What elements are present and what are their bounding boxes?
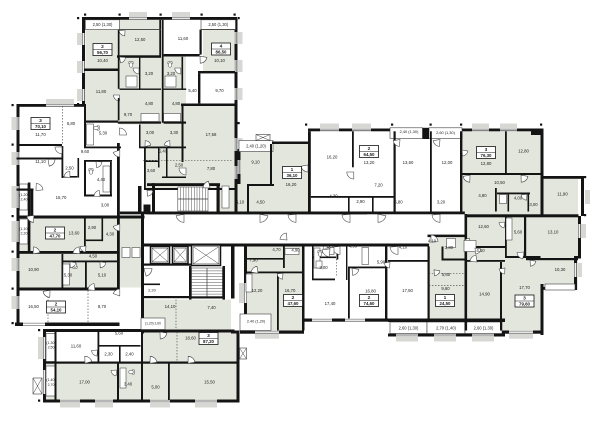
svg-text:9,60: 9,60 (441, 286, 450, 291)
svg-text:5,30: 5,30 (99, 131, 108, 136)
svg-text:54,10: 54,10 (51, 308, 63, 313)
svg-text:11,10: 11,10 (35, 159, 46, 164)
svg-text:(1,10): (1,10) (19, 227, 28, 231)
svg-text:16,70: 16,70 (285, 288, 296, 293)
svg-text:2,50 (1,30): 2,50 (1,30) (93, 22, 113, 27)
svg-text:5,10: 5,10 (98, 273, 107, 278)
svg-text:4,40: 4,40 (97, 177, 106, 182)
svg-text:13,60: 13,60 (69, 231, 80, 236)
svg-text:12,00: 12,00 (442, 160, 453, 165)
svg-text:3,00: 3,00 (146, 130, 155, 135)
svg-text:3,20: 3,20 (145, 71, 154, 76)
svg-text:74,60: 74,60 (364, 301, 376, 306)
svg-text:16,20: 16,20 (327, 155, 338, 160)
svg-text:3,20: 3,20 (437, 200, 446, 205)
svg-text:2: 2 (368, 146, 371, 152)
svg-text:4,80: 4,80 (145, 101, 154, 106)
svg-text:2,50: 2,50 (65, 166, 74, 171)
svg-text:16,20: 16,20 (286, 182, 297, 187)
svg-text:5,80: 5,80 (394, 200, 403, 205)
svg-text:4,70: 4,70 (272, 247, 281, 252)
svg-text:7,90: 7,90 (249, 258, 258, 263)
svg-text:7,40: 7,40 (207, 305, 216, 310)
svg-text:12,60: 12,60 (478, 224, 489, 229)
svg-text:2,70 (1,40): 2,70 (1,40) (436, 325, 456, 330)
svg-text:47,70: 47,70 (50, 234, 62, 239)
svg-text:16,80: 16,80 (365, 289, 376, 294)
svg-text:2,20: 2,20 (148, 289, 155, 293)
svg-text:12,20: 12,20 (252, 288, 263, 293)
svg-text:11,80: 11,80 (96, 89, 107, 94)
svg-text:1: 1 (291, 167, 294, 173)
svg-text:1: 1 (444, 295, 447, 301)
svg-text:10,30: 10,30 (555, 267, 566, 272)
svg-text:9,60: 9,60 (81, 149, 90, 154)
svg-text:5,60: 5,60 (514, 230, 523, 235)
svg-text:4: 4 (220, 44, 223, 50)
svg-text:47,60: 47,60 (288, 301, 300, 306)
svg-text:3,20: 3,20 (167, 71, 176, 76)
svg-text:17,00: 17,00 (79, 380, 90, 385)
svg-text:64,50: 64,50 (364, 152, 376, 157)
svg-text:3,40: 3,40 (124, 382, 133, 387)
svg-text:5,80: 5,80 (67, 121, 76, 126)
svg-text:10,10: 10,10 (214, 58, 225, 63)
svg-text:4,50: 4,50 (256, 200, 265, 205)
svg-text:14,10: 14,10 (165, 304, 176, 309)
svg-text:4,10: 4,10 (428, 239, 437, 244)
svg-text:10,90: 10,90 (28, 267, 39, 272)
svg-text:11,90: 11,90 (557, 192, 568, 197)
svg-text:2,40 (1,20): 2,40 (1,20) (247, 320, 266, 324)
svg-text:14,90: 14,90 (479, 292, 490, 297)
svg-text:2,20: 2,20 (21, 232, 28, 236)
svg-text:4,80: 4,80 (172, 101, 181, 106)
svg-text:13,10: 13,10 (548, 230, 559, 235)
svg-text:2,90: 2,90 (88, 225, 97, 230)
svg-text:18,60: 18,60 (185, 336, 196, 341)
svg-text:2,60 (1,30): 2,60 (1,30) (399, 325, 419, 330)
svg-text:79,60: 79,60 (519, 302, 531, 307)
svg-text:4,90: 4,90 (291, 248, 300, 253)
svg-text:4,80: 4,80 (478, 193, 487, 198)
svg-text:2,50: 2,50 (175, 163, 184, 168)
svg-text:4,90: 4,90 (349, 244, 358, 249)
svg-text:12,80: 12,80 (481, 161, 492, 166)
svg-text:17,58: 17,58 (206, 132, 217, 137)
svg-text:4,30: 4,30 (329, 194, 338, 199)
svg-text:10,40: 10,40 (97, 58, 108, 63)
svg-text:3,60: 3,60 (147, 168, 156, 173)
svg-text:2,40: 2,40 (21, 198, 28, 202)
svg-text:5,40: 5,40 (159, 149, 168, 154)
svg-text:2: 2 (101, 44, 104, 50)
svg-text:16,50: 16,50 (28, 304, 39, 309)
svg-text:10,50: 10,50 (494, 180, 505, 185)
svg-text:2: 2 (54, 228, 57, 234)
svg-text:17,40: 17,40 (325, 301, 336, 306)
svg-text:8,70: 8,70 (98, 304, 107, 309)
svg-text:4,10: 4,10 (476, 248, 485, 253)
svg-text:2,60 (1,30): 2,60 (1,30) (474, 325, 494, 330)
svg-text:3,80: 3,80 (445, 245, 454, 250)
svg-text:24,50: 24,50 (440, 301, 452, 306)
svg-text:11,70: 11,70 (35, 132, 46, 137)
svg-text:36,10: 36,10 (287, 173, 299, 178)
svg-text:9,70: 9,70 (124, 112, 133, 117)
svg-text:15,50: 15,50 (204, 380, 215, 385)
svg-text:5,00: 5,00 (151, 385, 160, 390)
svg-text:9,10: 9,10 (251, 160, 260, 165)
svg-text:3,00: 3,00 (319, 265, 328, 270)
svg-text:(1,20) 2,60: (1,20) 2,60 (145, 322, 161, 326)
svg-text:(1,40): (1,40) (46, 378, 55, 382)
svg-text:76,30: 76,30 (481, 153, 493, 158)
svg-text:87,20: 87,20 (203, 339, 215, 344)
svg-text:11,60: 11,60 (71, 344, 82, 349)
svg-text:5,60: 5,60 (115, 331, 124, 336)
svg-text:2,90: 2,90 (356, 199, 365, 204)
svg-text:3: 3 (207, 333, 210, 339)
svg-text:12,50: 12,50 (135, 37, 146, 42)
svg-text:13,60: 13,60 (403, 160, 414, 165)
svg-text:3: 3 (523, 296, 526, 302)
svg-text:2,30: 2,30 (104, 352, 113, 357)
svg-text:2,40: 2,40 (125, 352, 134, 357)
svg-text:5,90: 5,90 (377, 260, 386, 265)
svg-text:2,60 (1,30): 2,60 (1,30) (436, 130, 456, 135)
svg-text:2,40 (1,20): 2,40 (1,20) (246, 144, 266, 149)
svg-text:86,50: 86,50 (216, 50, 228, 55)
svg-text:2,50: 2,50 (48, 346, 55, 350)
svg-text:7,20: 7,20 (374, 183, 383, 188)
svg-text:9,70: 9,70 (215, 88, 224, 93)
svg-text:2: 2 (292, 295, 295, 301)
svg-text:3: 3 (39, 118, 42, 124)
svg-text:17,70: 17,70 (519, 285, 530, 290)
svg-text:56,70: 56,70 (97, 50, 109, 55)
svg-text:5,10: 5,10 (236, 200, 245, 205)
svg-text:11,60: 11,60 (178, 36, 189, 41)
svg-text:3,30: 3,30 (170, 130, 179, 135)
svg-text:70,10: 70,10 (35, 124, 47, 129)
svg-text:2: 2 (368, 295, 371, 301)
svg-text:2,70: 2,70 (48, 383, 55, 387)
svg-text:5,40: 5,40 (188, 88, 197, 93)
svg-text:15,70: 15,70 (56, 195, 67, 200)
svg-text:7,80: 7,80 (207, 166, 216, 171)
svg-text:2,50 (1,30): 2,50 (1,30) (208, 22, 228, 27)
svg-text:(1,30): (1,30) (46, 341, 55, 345)
svg-text:(1,20): (1,20) (19, 193, 28, 197)
svg-text:4,30: 4,30 (106, 232, 115, 237)
svg-text:5,30: 5,30 (64, 273, 73, 278)
svg-text:12,80: 12,80 (518, 149, 529, 154)
svg-text:3,00: 3,00 (101, 203, 110, 208)
svg-text:17,50: 17,50 (402, 288, 413, 293)
svg-text:4,50: 4,50 (89, 254, 98, 259)
svg-text:3: 3 (485, 147, 488, 153)
svg-text:5,60: 5,60 (442, 272, 451, 277)
svg-text:13,20: 13,20 (364, 160, 375, 165)
svg-text:2,40 (1,30): 2,40 (1,30) (400, 129, 420, 134)
svg-text:3,00: 3,00 (529, 202, 538, 207)
svg-text:2: 2 (55, 302, 58, 308)
svg-text:4,10: 4,10 (399, 245, 408, 250)
svg-text:4,00: 4,00 (514, 196, 523, 201)
svg-text:1,78: 1,78 (322, 245, 331, 250)
